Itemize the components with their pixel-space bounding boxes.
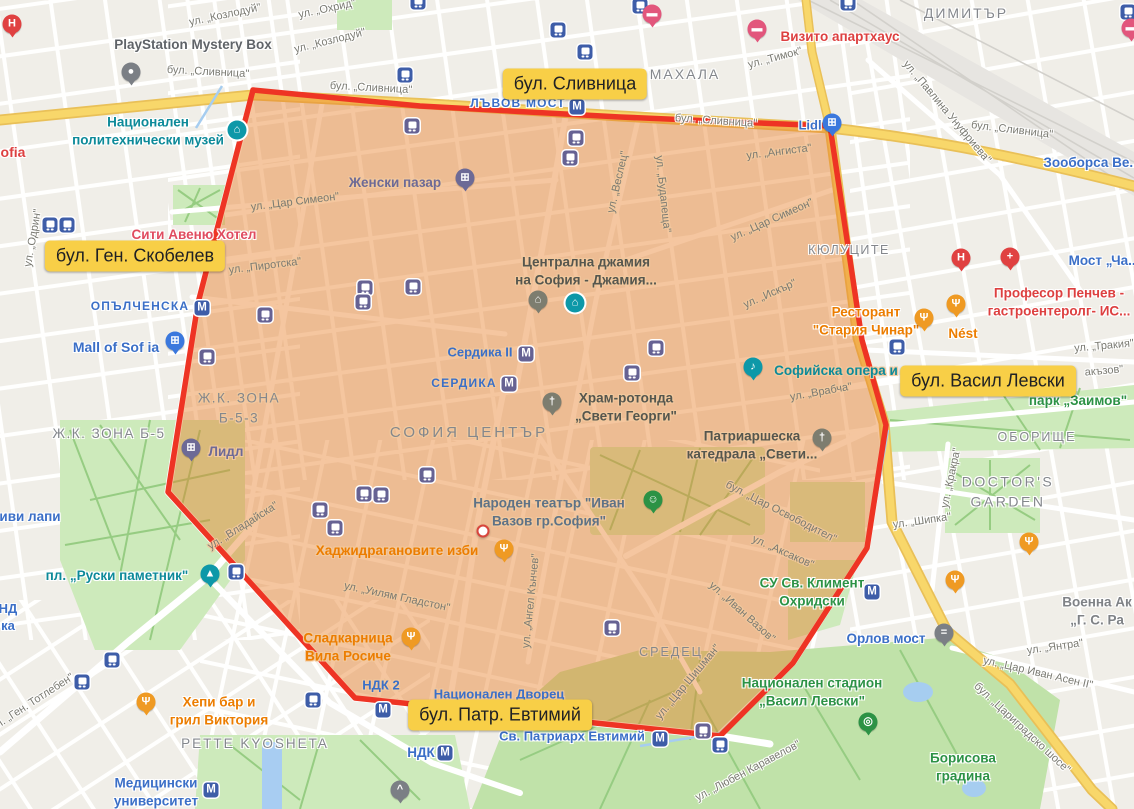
- poi-label[interactable]: СЕРДИКА: [431, 376, 496, 392]
- restaurant-pin-glyph: Ψ: [947, 295, 966, 314]
- museum-icon[interactable]: ⌂: [566, 294, 585, 313]
- tram-stop-icon[interactable]: [328, 521, 343, 536]
- street-name-label: ул. „Тимок": [747, 45, 804, 71]
- playstation-store-pin[interactable]: ●: [122, 63, 141, 82]
- street-name-label: ул. „Одрин": [22, 208, 44, 268]
- tram-stop-icon[interactable]: [569, 131, 584, 146]
- mall-pin[interactable]: ⊞: [166, 332, 185, 351]
- hotel-pin[interactable]: ▬: [643, 5, 662, 24]
- tram-stop-icon[interactable]: [649, 341, 664, 356]
- tram-stop-icon[interactable]: [406, 280, 421, 295]
- tram-stop-icon[interactable]: [306, 693, 321, 708]
- mall-pin-glyph: ⊞: [166, 332, 185, 351]
- museum-icon[interactable]: ⌂: [228, 121, 247, 140]
- tram-stop-icon[interactable]: [1121, 5, 1134, 20]
- metro-icon[interactable]: М: [204, 783, 219, 798]
- metro-icon[interactable]: М: [653, 732, 668, 747]
- metro-icon[interactable]: М: [502, 377, 517, 392]
- poi-label[interactable]: Хаджидрагановите изби: [316, 542, 479, 560]
- restaurant-pin[interactable]: Ψ: [495, 540, 514, 559]
- poi-label[interactable]: Храм-ротонда„Свети Георги": [575, 389, 677, 424]
- tram-stop-icon[interactable]: [578, 45, 593, 60]
- tram-stop-icon[interactable]: [398, 68, 413, 83]
- tram-stop-icon[interactable]: [696, 724, 711, 739]
- street-name-label: бул. „Ген. Тотлебен": [0, 671, 76, 737]
- poi-label[interactable]: НДК 2: [362, 678, 399, 695]
- poi-label[interactable]: Орлов мост: [846, 630, 925, 648]
- tram-stop-icon[interactable]: [411, 0, 426, 10]
- tram-stop-icon[interactable]: [420, 468, 435, 483]
- tram-stop-icon[interactable]: [713, 738, 728, 753]
- metro-icon[interactable]: М: [519, 347, 534, 362]
- metro-icon[interactable]: М: [570, 100, 585, 115]
- street-tag: бул. Патр. Евтимий: [408, 700, 592, 731]
- street-name-label: ул. „Аксаков": [750, 533, 815, 571]
- tram-stop-icon[interactable]: [625, 366, 640, 381]
- street-name-label: ул. „Козлодуй": [293, 26, 367, 55]
- poi-label[interactable]: ofia: [1, 143, 26, 161]
- poi-label[interactable]: Национален стадион„Васил Левски": [742, 674, 882, 709]
- street-name-label: ул. „Врабча": [789, 381, 853, 404]
- tram-stop-icon[interactable]: [229, 565, 244, 580]
- street-tag: бул. Ген. Скобелев: [45, 241, 225, 272]
- hotel-pin[interactable]: ▬: [748, 20, 767, 39]
- metro-icon[interactable]: М: [376, 703, 391, 718]
- poi-label[interactable]: Nést: [948, 325, 977, 343]
- tram-stop-icon[interactable]: [313, 503, 328, 518]
- map-labels-layer: ул. „Козлодуй"ул. „Козлодуй"ул. „Охрид"б…: [0, 0, 1134, 809]
- map-canvas[interactable]: ул. „Козлодуй"ул. „Козлодуй"ул. „Охрид"б…: [0, 0, 1134, 809]
- restaurant-pin-glyph: Ψ: [946, 571, 965, 590]
- tram-stop-icon[interactable]: [890, 340, 905, 355]
- education-pin-glyph: ^: [391, 781, 410, 800]
- poi-label[interactable]: Централна джамияна София - Джамия...: [515, 253, 657, 288]
- poi-label[interactable]: СладкарницаВила Росиче: [303, 629, 392, 664]
- poi-label[interactable]: НДК: [407, 744, 435, 762]
- education-pin[interactable]: ^: [391, 781, 410, 800]
- restaurant-pin-glyph: Ψ: [495, 540, 514, 559]
- street-name-label: ул. „Любен Каравелов": [694, 738, 803, 804]
- street-name-label: ул. „Цар Симеон": [250, 191, 340, 214]
- tram-stop-icon[interactable]: [358, 281, 373, 296]
- mosque-pin[interactable]: ⌂: [529, 291, 548, 310]
- street-name-label: ул. „Владайска": [206, 500, 281, 553]
- tram-stop-icon[interactable]: [563, 151, 578, 166]
- poi-label[interactable]: Националенполитехнически музей: [72, 113, 224, 148]
- tram-stop-icon[interactable]: [75, 675, 90, 690]
- poi-label[interactable]: Lidl: [798, 118, 821, 135]
- location-dot: [477, 525, 490, 538]
- poi-label[interactable]: Сердика II: [447, 345, 512, 362]
- restaurant-pin[interactable]: Ψ: [1020, 533, 1039, 552]
- church-pin[interactable]: †: [813, 429, 832, 448]
- district-label: ДИМИТЪР: [924, 3, 1008, 23]
- stadium-pin[interactable]: ◎: [859, 713, 878, 732]
- street-name-label: ул. „Янтра": [1026, 637, 1084, 657]
- hotel-pin[interactable]: ▬: [1122, 19, 1134, 38]
- district-label: КЮЛУЦИТЕ: [808, 241, 890, 259]
- poi-label[interactable]: Св. Патриарх Евтимий: [499, 729, 645, 746]
- theater-pin-glyph: ☺: [644, 491, 663, 510]
- poi-label[interactable]: Военна Ак„Г. С. Ра: [1062, 593, 1132, 628]
- district-label: DOCTOR'SGARDEN: [962, 472, 1054, 513]
- market-pin-glyph: ⊞: [456, 169, 475, 188]
- district-label: Ж.К. ЗОНА Б-5: [53, 424, 166, 444]
- restaurant-pin[interactable]: Ψ: [915, 309, 934, 328]
- poi-label[interactable]: Софийска опера и: [774, 362, 898, 380]
- monument-pin-glyph: ▲: [201, 565, 220, 584]
- opera-music-pin[interactable]: ♪: [744, 358, 763, 377]
- metro-icon[interactable]: М: [195, 301, 210, 316]
- grocery-pin[interactable]: ⊞: [182, 439, 201, 458]
- tram-stop-icon[interactable]: [357, 487, 372, 502]
- poi-label[interactable]: Зооборса Ве...: [1043, 154, 1134, 172]
- clinic-pin[interactable]: +: [1001, 248, 1020, 267]
- poi-label[interactable]: PlayStation Mystery Box: [114, 36, 272, 54]
- hotel-pin-glyph: ▬: [1122, 19, 1134, 38]
- monument-pin[interactable]: ▲: [201, 565, 220, 584]
- street-name-label: ул. „Кракра": [939, 447, 963, 509]
- district-label: МАХАЛА: [650, 64, 721, 84]
- poi-label[interactable]: СУ Св. КлиментОхридски: [760, 574, 865, 609]
- street-name-label: бул. „Сливница": [970, 119, 1053, 141]
- tram-stop-icon[interactable]: [200, 350, 215, 365]
- grocery-pin-glyph: ⊞: [182, 439, 201, 458]
- stadium-pin-glyph: ◎: [859, 713, 878, 732]
- street-name-label: ул. „Охрид": [297, 0, 356, 21]
- market-pin[interactable]: ⊞: [456, 169, 475, 188]
- tram-stop-icon[interactable]: [605, 621, 620, 636]
- tram-stop-icon[interactable]: [841, 0, 856, 11]
- street-name-label: бул. „Сливница": [167, 64, 250, 80]
- street-name-label: акъзов": [1084, 363, 1123, 378]
- tram-stop-icon[interactable]: [551, 23, 566, 38]
- street-name-label: ул. „Ангел Кънчев": [520, 553, 542, 649]
- district-label: Ж.К. ЗОНАБ-5-3: [198, 388, 280, 427]
- poi-label[interactable]: Медицинскиуниверситет: [114, 774, 198, 809]
- street-name-label: бул. „Цар Освободител": [724, 479, 839, 545]
- poi-label[interactable]: Народен театър "ИванВазов гр.София": [473, 494, 625, 529]
- street-name-label: ул. „Козлодуй": [188, 2, 262, 29]
- district-label: PETTE KYOSHETA: [181, 734, 329, 754]
- tram-stop-icon[interactable]: [43, 218, 58, 233]
- street-name-label: ул. „Искър": [742, 277, 799, 311]
- church-pin-glyph: †: [813, 429, 832, 448]
- hospital-pin[interactable]: H: [3, 15, 22, 34]
- street-name-label: ул. „Павлина Унуфриева": [901, 58, 994, 165]
- poi-label[interactable]: Патриаршескакатедрала „Свети...: [687, 427, 818, 462]
- poi-label[interactable]: НДка: [0, 601, 17, 635]
- restaurant-pin-glyph: Ψ: [402, 628, 421, 647]
- grocery-pin[interactable]: ⊞: [823, 114, 842, 133]
- street-name-label: ул. „Будапеща": [653, 155, 673, 233]
- poi-label[interactable]: пл. „Руски паметник": [46, 567, 189, 585]
- street-name-label: ул. „Веслец": [605, 150, 631, 214]
- street-name-label: бул. „Сливница": [674, 112, 757, 130]
- opera-music-pin-glyph: ♪: [744, 358, 763, 377]
- tram-stop-icon[interactable]: [60, 218, 75, 233]
- poi-label[interactable]: Визито апартхаус: [780, 28, 899, 46]
- district-label: ОБОРИЩЕ: [998, 428, 1077, 446]
- museum-icon-glyph: ⌂: [228, 121, 247, 140]
- tram-stop-icon[interactable]: [258, 308, 273, 323]
- poi-label[interactable]: Женски пазар: [349, 174, 441, 192]
- street-name-label: ул. „Шипка": [892, 511, 952, 531]
- poi-label[interactable]: Професор Пенчев -гастроентеролг- ИС...: [988, 284, 1131, 319]
- hotel-pin-glyph: ▬: [643, 5, 662, 24]
- church-pin-glyph: †: [543, 393, 562, 412]
- poi-label[interactable]: Лидл: [209, 443, 244, 461]
- street-name-label: ул. „Ангиста": [746, 142, 812, 162]
- restaurant-pin-glyph: Ψ: [915, 309, 934, 328]
- street-name-label: ул. „Цар Симеон": [729, 196, 815, 243]
- poi-label[interactable]: Борисоваградина: [930, 749, 996, 784]
- clinic-pin-glyph: +: [1001, 248, 1020, 267]
- restaurant-pin[interactable]: Ψ: [402, 628, 421, 647]
- mosque-pin-glyph: ⌂: [529, 291, 548, 310]
- street-name-label: ул. „Цар Иван Асен II": [982, 655, 1094, 692]
- street-name-label: ул. „Пиротска": [228, 256, 302, 277]
- tram-stop-icon[interactable]: [405, 119, 420, 134]
- restaurant-pin-glyph: Ψ: [1020, 533, 1039, 552]
- poi-label[interactable]: иви лапи: [0, 508, 61, 526]
- church-pin[interactable]: †: [543, 393, 562, 412]
- hospital-pin-glyph: H: [3, 15, 22, 34]
- theater-pin[interactable]: ☺: [644, 491, 663, 510]
- restaurant-pin-glyph: Ψ: [137, 693, 156, 712]
- tram-stop-icon[interactable]: [105, 653, 120, 668]
- poi-label[interactable]: Mall of Sof ia: [73, 338, 159, 356]
- poi-label[interactable]: Хепи бар игрил Виктория: [170, 693, 268, 728]
- metro-icon[interactable]: М: [865, 585, 880, 600]
- poi-label[interactable]: Мост „Ча...: [1069, 252, 1134, 270]
- street-tag: бул. Васил Левски: [900, 366, 1076, 397]
- street-tag: бул. Сливница: [503, 69, 647, 100]
- bridge-pin[interactable]: =: [935, 624, 954, 643]
- bridge-pin-glyph: =: [935, 624, 954, 643]
- poi-label[interactable]: Ресторант"Стария Чинар": [813, 303, 920, 338]
- restaurant-pin[interactable]: Ψ: [137, 693, 156, 712]
- district-label: СРЕДЕЦ: [639, 643, 703, 661]
- restaurant-pin[interactable]: Ψ: [946, 571, 965, 590]
- tram-stop-icon[interactable]: [356, 295, 371, 310]
- restaurant-pin[interactable]: Ψ: [947, 295, 966, 314]
- museum-icon-glyph: ⌂: [566, 294, 585, 313]
- district-label: СОФИЯ ЦЕНТЪР: [390, 422, 548, 444]
- poi-label[interactable]: ОПЪЛЧЕНСКА: [91, 299, 190, 315]
- street-name-label: ул. „Уилям Гладстон": [343, 580, 451, 614]
- playstation-store-pin-glyph: ●: [122, 63, 141, 82]
- tram-stop-icon[interactable]: [374, 488, 389, 503]
- metro-icon[interactable]: М: [438, 746, 453, 761]
- grocery-pin-glyph: ⊞: [823, 114, 842, 133]
- hospital-pin-glyph: H: [952, 249, 971, 268]
- street-name-label: ул. „Тракия": [1074, 337, 1134, 354]
- hotel-pin-glyph: ▬: [748, 20, 767, 39]
- hospital-pin[interactable]: H: [952, 249, 971, 268]
